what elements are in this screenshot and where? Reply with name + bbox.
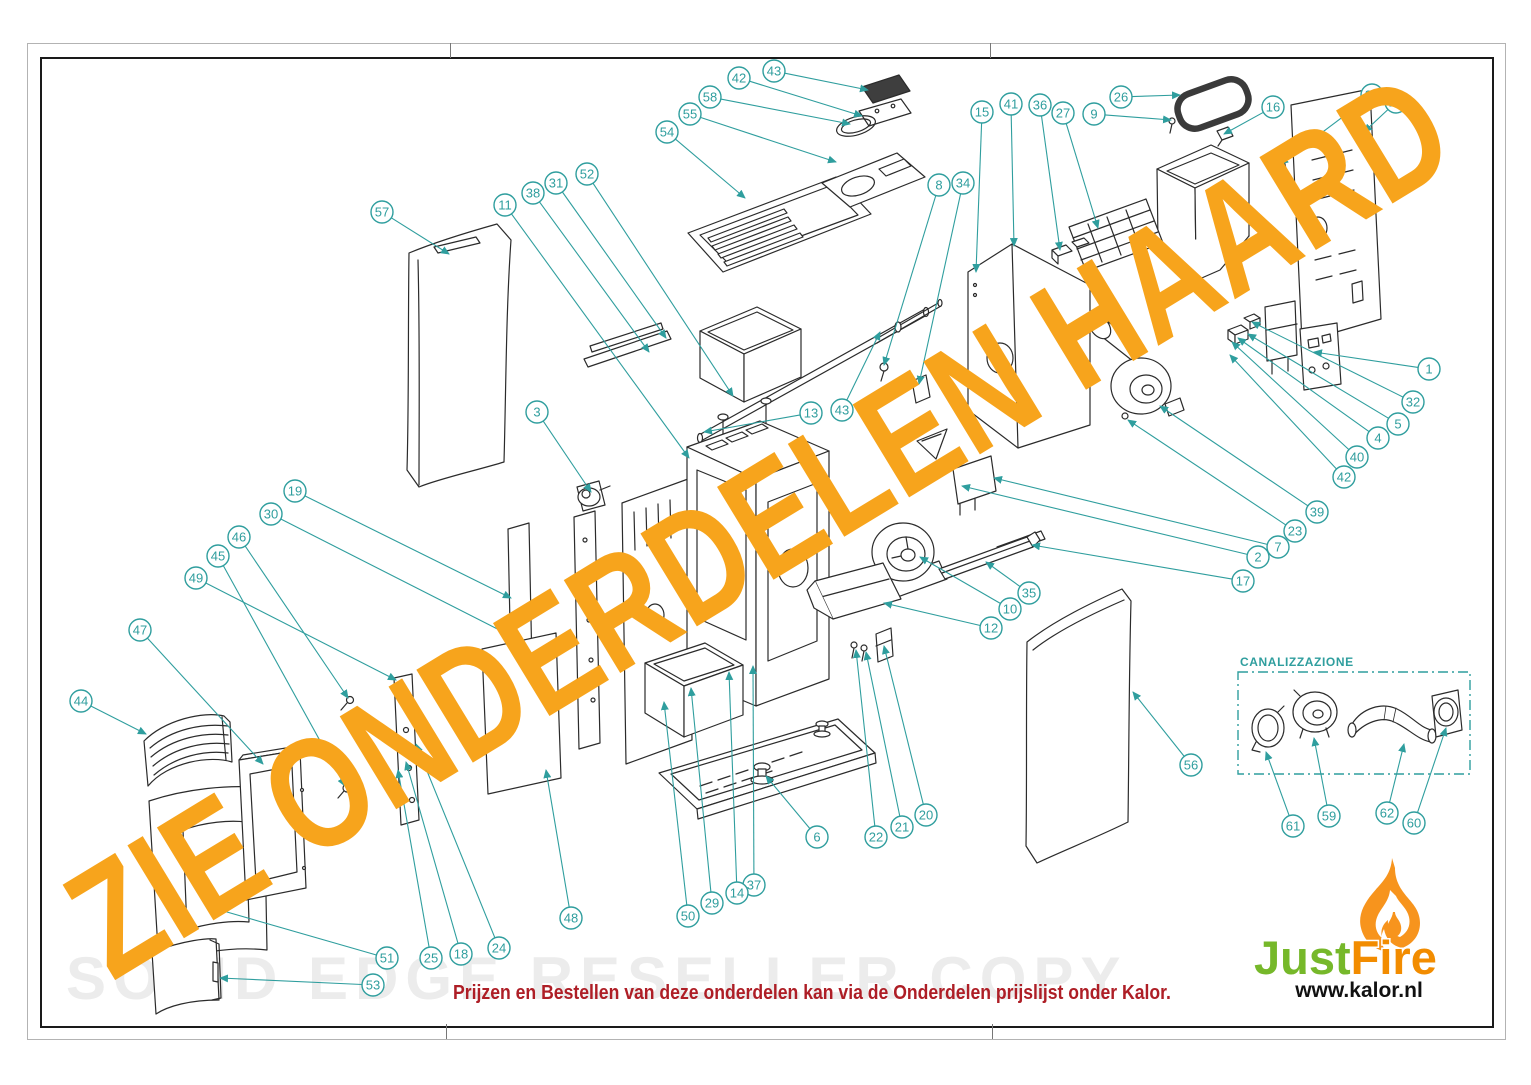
- leader-line: [721, 99, 850, 124]
- callout-number: 21: [895, 820, 909, 835]
- callout-number: 52: [580, 167, 594, 182]
- callout-number: 60: [1407, 816, 1421, 831]
- callout-number: 24: [492, 941, 506, 956]
- callout-12: 12: [884, 603, 1002, 639]
- callout-number: 1: [1425, 362, 1432, 377]
- part-auger-motor: [577, 481, 610, 511]
- callout-number: 40: [1350, 450, 1364, 465]
- callout-number: 9: [1090, 107, 1097, 122]
- callout-number: 34: [956, 176, 970, 191]
- callout-number: 53: [366, 978, 380, 993]
- leader-line: [1011, 115, 1014, 246]
- callout-17: 17: [1032, 545, 1254, 592]
- callout-62: 62: [1376, 744, 1404, 824]
- callout-number: 56: [1184, 758, 1198, 773]
- callout-number: 12: [984, 621, 998, 636]
- callout-number: 6: [813, 830, 820, 845]
- callout-number: 3: [533, 405, 540, 420]
- callout-number: 7: [1274, 540, 1281, 555]
- brand-just: Just: [1254, 931, 1351, 984]
- part-slide-rails: [939, 531, 1045, 579]
- leader-line: [884, 646, 923, 804]
- callout-number: 17: [1236, 574, 1250, 589]
- leader-line: [1066, 124, 1098, 229]
- callout-54: 54: [656, 121, 745, 198]
- part-left-side-panel: [407, 224, 511, 487]
- part-flex-tube: [1348, 706, 1436, 743]
- callout-57: 57: [371, 201, 449, 254]
- callout-number: 4: [1374, 431, 1381, 446]
- callout-3: 3: [526, 401, 591, 492]
- callout-number: 47: [133, 623, 147, 638]
- callout-number: 38: [526, 186, 540, 201]
- callout-number: 46: [232, 530, 246, 545]
- callout-number: 20: [919, 808, 933, 823]
- logo-url[interactable]: www.kalor.nl: [1294, 979, 1423, 1002]
- callout-39: 39: [1160, 406, 1328, 523]
- leader-line: [245, 546, 348, 698]
- leader-line: [1314, 738, 1327, 805]
- callout-56: 56: [1133, 692, 1202, 776]
- callout-number: 11: [498, 198, 512, 213]
- callout-number: 50: [681, 909, 695, 924]
- callout-number: 58: [703, 90, 717, 105]
- part-right-side-panel: [1026, 589, 1131, 863]
- callout-43: 43: [763, 60, 868, 90]
- footer-order-note: Prijzen en Bestellen van deze onderdelen…: [453, 982, 1171, 1005]
- callout-number: 62: [1380, 806, 1394, 821]
- callout-number: 31: [549, 176, 563, 191]
- leader-line: [91, 706, 146, 734]
- callout-number: 27: [1056, 106, 1070, 121]
- callout-number: 41: [1004, 97, 1018, 112]
- leader-line: [700, 117, 836, 162]
- callout-number: 14: [730, 886, 744, 901]
- part-duct-flange: [1432, 690, 1462, 737]
- callout-number: 8: [935, 178, 942, 193]
- leader-line: [1390, 744, 1404, 802]
- leader-line: [1132, 95, 1180, 97]
- callout-number: 55: [683, 107, 697, 122]
- callout-60: 60: [1403, 728, 1446, 834]
- callout-number: 30: [264, 507, 278, 522]
- callout-26: 26: [1110, 86, 1180, 108]
- callout-number: 19: [288, 484, 302, 499]
- callout-number: 37: [747, 878, 761, 893]
- callout-number: 5: [1394, 417, 1401, 432]
- callout-number: 2: [1254, 550, 1261, 565]
- leader-line: [1042, 116, 1061, 250]
- callout-number: 48: [564, 911, 578, 926]
- part-glass-strip: [862, 75, 910, 103]
- callout-40: 40: [1232, 342, 1368, 468]
- canalizzazione-label: CANALIZZAZIONE: [1240, 655, 1354, 669]
- leader-line: [540, 202, 650, 352]
- leader-line: [1133, 692, 1184, 756]
- callout-19: 19: [284, 480, 511, 598]
- callout-61: 61: [1266, 752, 1304, 837]
- part-heat-exchanger-box: [700, 307, 801, 402]
- callout-number: 44: [74, 694, 88, 709]
- callout-number: 22: [869, 830, 883, 845]
- leader-line: [785, 73, 868, 90]
- callout-44: 44: [70, 690, 146, 734]
- callout-59: 59: [1314, 738, 1340, 827]
- leader-line: [543, 421, 591, 492]
- brand-fire: Fire: [1351, 931, 1437, 984]
- callout-number: 43: [767, 64, 781, 79]
- callout-number: 18: [454, 947, 468, 962]
- leader-line: [220, 978, 362, 985]
- justfire-logo: JustFire www.kalor.nl: [1252, 856, 1466, 1006]
- part-duct-fan: [1293, 690, 1337, 738]
- callout-31: 31: [545, 172, 666, 338]
- callout-53: 53: [220, 974, 384, 996]
- callout-number: 36: [1033, 98, 1047, 113]
- leader-line: [986, 562, 1020, 587]
- callout-41: 41: [1000, 93, 1022, 246]
- callout-number: 51: [380, 951, 394, 966]
- leader-line: [884, 603, 980, 626]
- leader-line: [546, 770, 569, 907]
- brand-wordmark: JustFire: [1254, 931, 1437, 984]
- callout-number: 42: [1337, 470, 1351, 485]
- callout-number: 35: [1022, 586, 1036, 601]
- callout-number: 61: [1286, 819, 1300, 834]
- callout-42: 42: [728, 67, 862, 116]
- callout-number: 23: [1288, 524, 1302, 539]
- part-duct-gasket: [1252, 706, 1284, 752]
- drawing-sheet: SOLID EDGE RESELLER COPY: [0, 0, 1531, 1085]
- callout-number: 54: [660, 125, 674, 140]
- callout-number: 29: [705, 896, 719, 911]
- callout-48: 48: [546, 770, 582, 929]
- callout-number: 59: [1322, 809, 1336, 824]
- canalizzazione-inset: CANALIZZAZIONE: [1238, 655, 1470, 774]
- callout-number: 10: [1003, 602, 1017, 617]
- callout-number: 49: [189, 571, 203, 586]
- callout-38: 38: [522, 182, 649, 352]
- callout-23: 23: [1128, 420, 1306, 542]
- leader-line: [1032, 545, 1232, 579]
- leader-line: [1128, 420, 1286, 525]
- leader-line: [750, 81, 863, 116]
- callout-20: 20: [884, 646, 937, 826]
- leader-line: [1266, 752, 1289, 816]
- part-support-rails: [584, 323, 671, 367]
- callout-46: 46: [228, 526, 348, 698]
- callout-number: 15: [975, 105, 989, 120]
- callout-number: 42: [732, 71, 746, 86]
- callout-55: 55: [679, 103, 836, 162]
- leader-line: [976, 123, 982, 272]
- part-glass-frame-strip: [859, 99, 911, 126]
- callout-number: 39: [1310, 505, 1324, 520]
- callout-number: 25: [424, 951, 438, 966]
- callout-number: 57: [375, 205, 389, 220]
- leader-line: [593, 183, 733, 396]
- leader-line: [675, 139, 745, 198]
- callout-number: 26: [1114, 90, 1128, 105]
- callout-15: 15: [971, 101, 993, 272]
- callout-number: 32: [1406, 395, 1420, 410]
- callout-number: 45: [211, 549, 225, 564]
- leader-line: [562, 192, 666, 338]
- leader-line: [1105, 115, 1171, 120]
